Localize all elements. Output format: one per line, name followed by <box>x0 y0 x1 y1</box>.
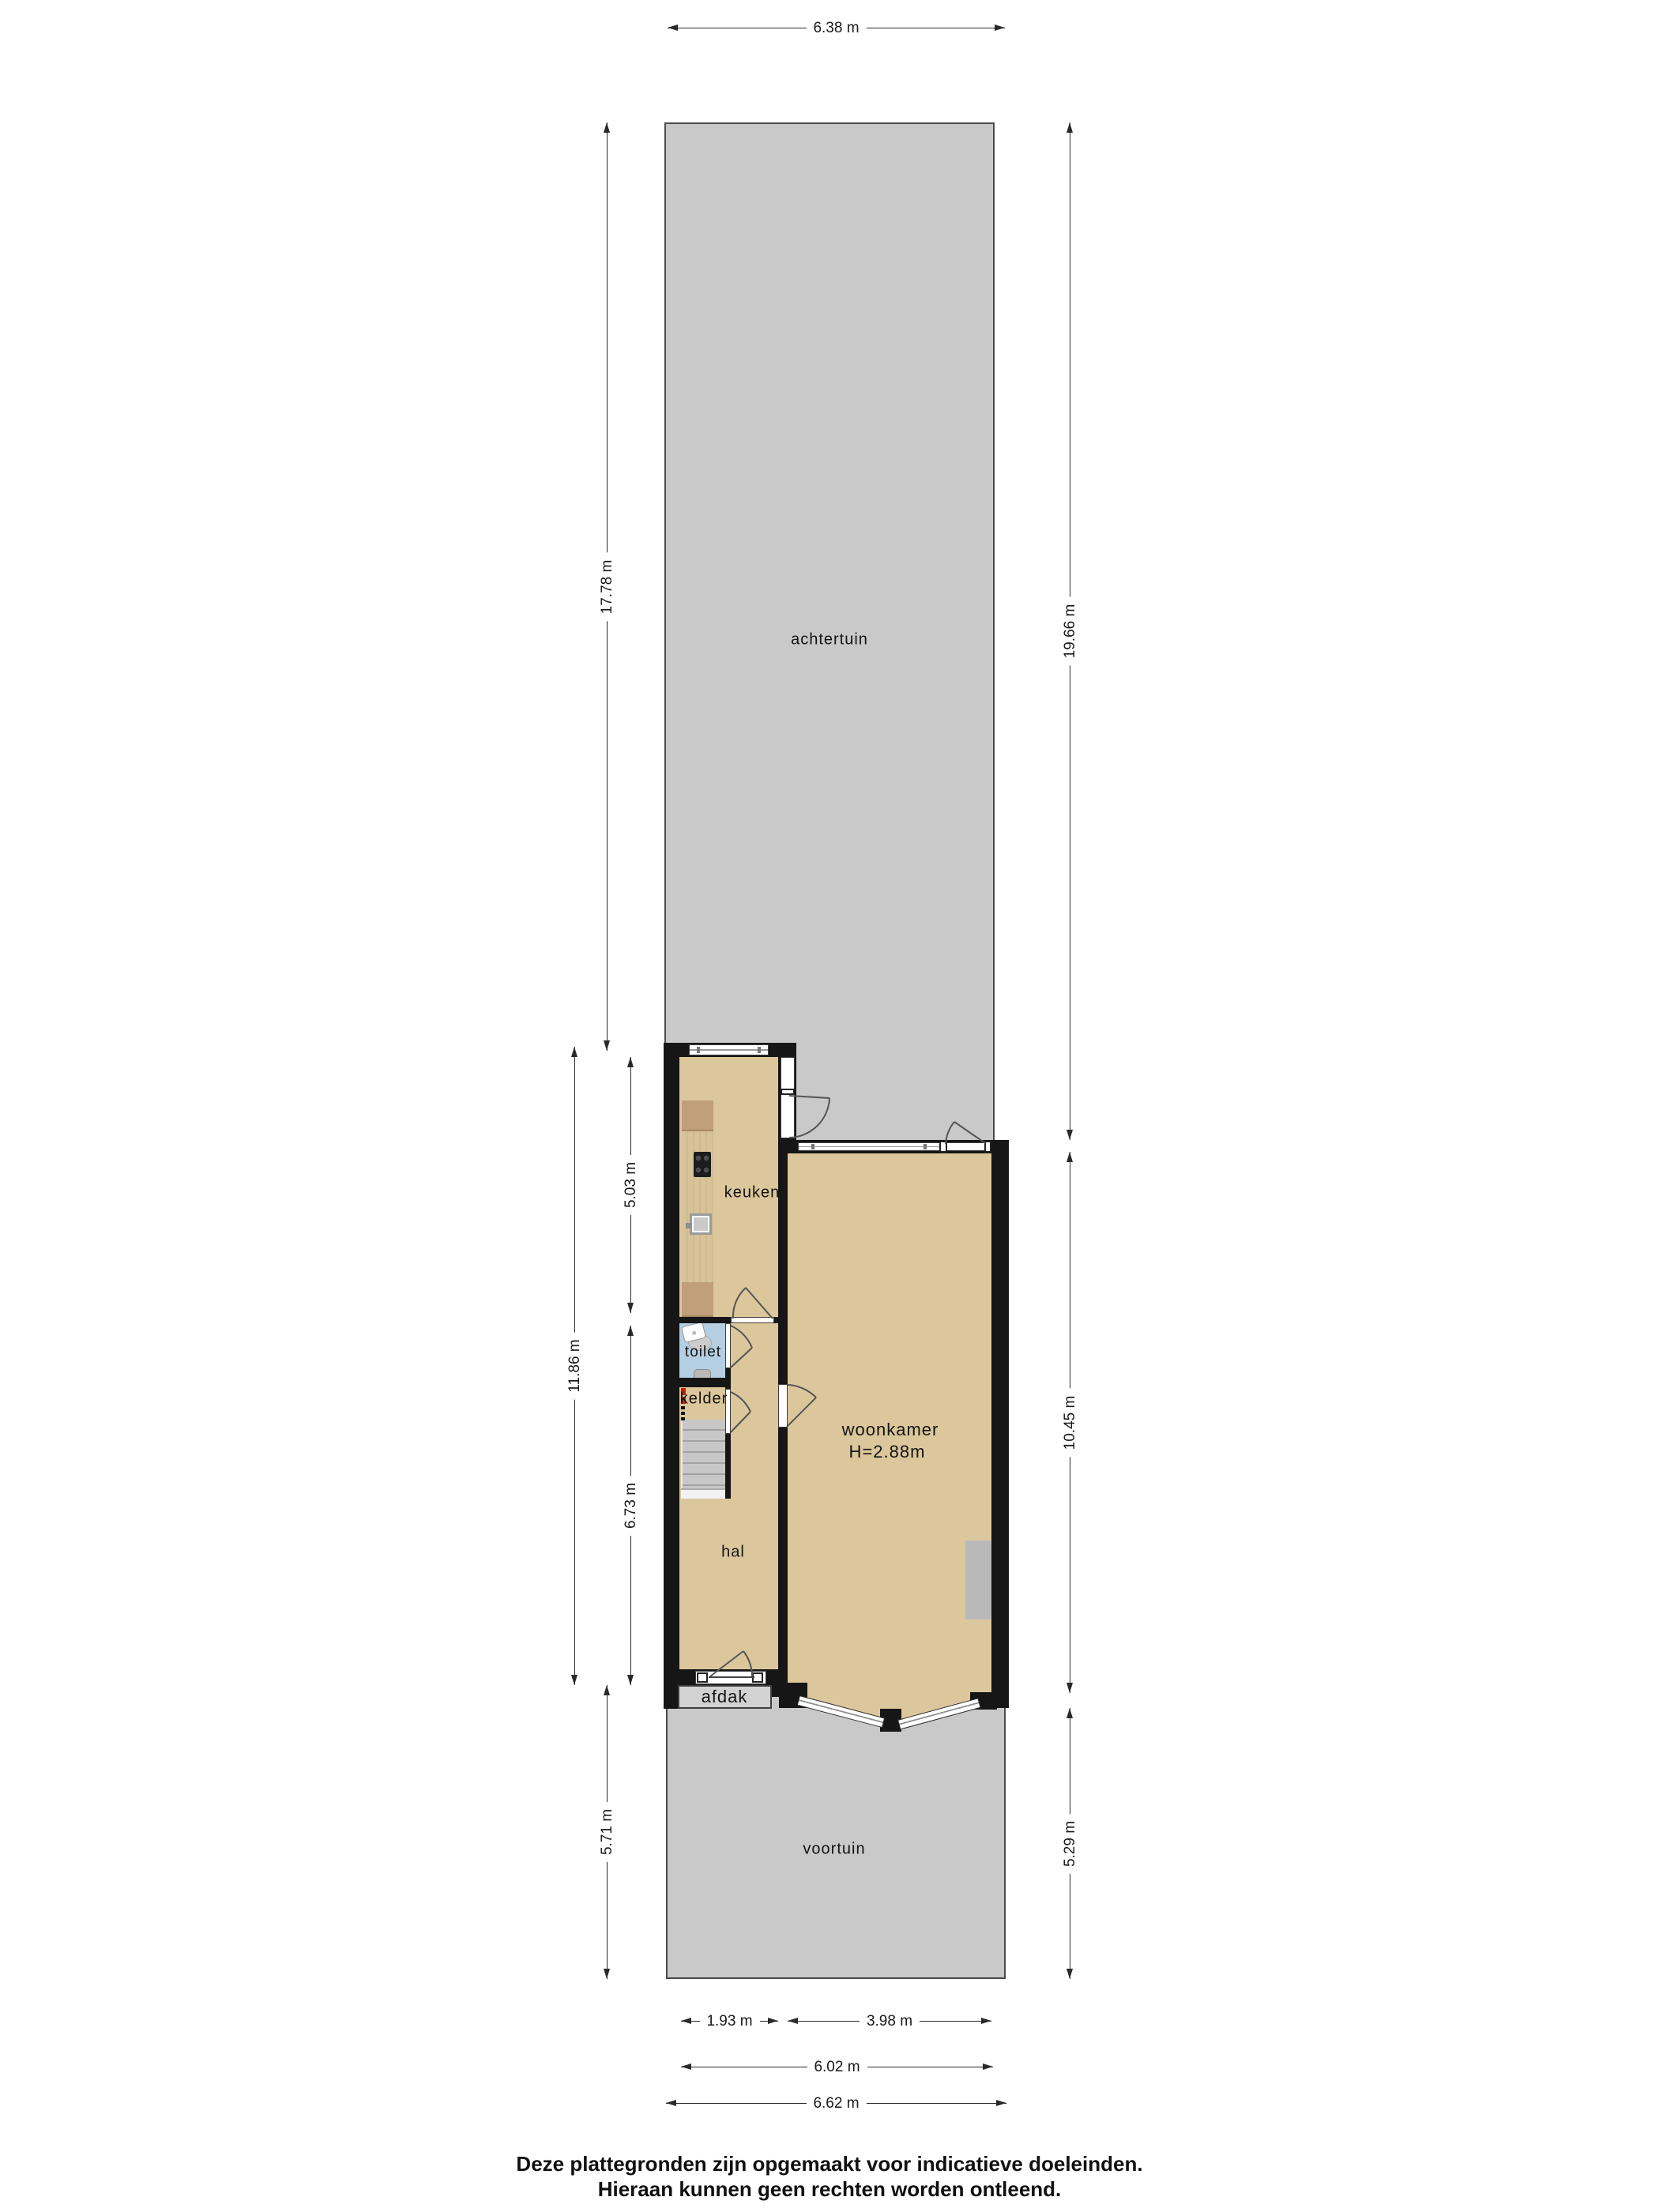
room-label-toilet: toilet <box>685 1344 721 1361</box>
dim-label: 17.78 m <box>599 552 616 621</box>
dim-left-house-total: 11.86 m <box>574 1047 575 1685</box>
dim-bottom-keuken: 1.93 m <box>681 2021 778 2022</box>
door-swing-arcs <box>0 0 1659 2212</box>
dim-label: 6.02 m <box>807 2059 867 2076</box>
dim-label: 6.38 m <box>806 20 866 37</box>
disclaimer-line-2: Hieraan kunnen geen rechten worden ontle… <box>0 2176 1659 2202</box>
dim-right-voortuin: 5.29 m <box>1070 1708 1070 1979</box>
dim-label: 11.86 m <box>566 1332 584 1399</box>
room-label-kelder: kelder <box>680 1390 728 1409</box>
floorplan-canvas: achtertuin keuken toilet kelder hal woon… <box>0 0 1659 2212</box>
dim-top-width: 6.38 m <box>668 28 1005 28</box>
door-arc-hal-woonkamer <box>787 1385 816 1427</box>
dim-bottom-outer: 6.62 m <box>666 2103 1006 2104</box>
dim-left-keuken: 5.03 m <box>630 1057 631 1313</box>
room-label-voortuin: voortuin <box>803 1841 865 1859</box>
dim-left-voortuin: 5.71 m <box>607 1685 608 1979</box>
door-arc-front <box>710 1651 752 1676</box>
room-label-woonkamer-height: H=2.88m <box>849 1442 926 1462</box>
dim-left-achtertuin: 17.78 m <box>607 122 608 1051</box>
dim-label: 19.66 m <box>1062 597 1079 666</box>
door-arc-woonkamer-garden <box>946 1122 985 1144</box>
room-label-afdak: afdak <box>702 1687 748 1707</box>
dim-label: 6.73 m <box>623 1475 640 1535</box>
door-arc-toilet <box>731 1326 752 1367</box>
door-arc-kelder <box>731 1392 750 1432</box>
dim-bottom-woonkamer: 3.98 m <box>788 2021 991 2022</box>
dim-label: 10.45 m <box>1062 1388 1079 1457</box>
disclaimer-footer: Deze plattegronden zijn opgemaakt voor i… <box>0 2151 1659 2202</box>
dim-label: 5.29 m <box>1062 1813 1079 1873</box>
door-arc-keuken-hal <box>733 1288 773 1319</box>
dim-bottom-inner: 6.02 m <box>681 2067 993 2067</box>
dim-label: 5.03 m <box>623 1155 640 1215</box>
dim-label: 6.62 m <box>806 2095 866 2112</box>
dim-label: 3.98 m <box>860 2013 920 2030</box>
dim-label: 5.71 m <box>599 1802 616 1862</box>
dim-left-hal: 6.73 m <box>630 1326 631 1685</box>
room-label-keuken: keuken <box>724 1184 781 1202</box>
room-label-woonkamer: woonkamer <box>842 1420 939 1440</box>
room-label-hal: hal <box>721 1544 745 1562</box>
dim-right-woonkamer: 10.45 m <box>1070 1152 1070 1693</box>
disclaimer-line-1: Deze plattegronden zijn opgemaakt voor i… <box>0 2151 1659 2176</box>
room-label-achtertuin: achtertuin <box>791 631 868 649</box>
dim-right-achtertuin: 19.66 m <box>1070 122 1070 1140</box>
dim-label: 1.93 m <box>699 2013 759 2030</box>
door-arc-keuken-garden <box>789 1096 829 1138</box>
